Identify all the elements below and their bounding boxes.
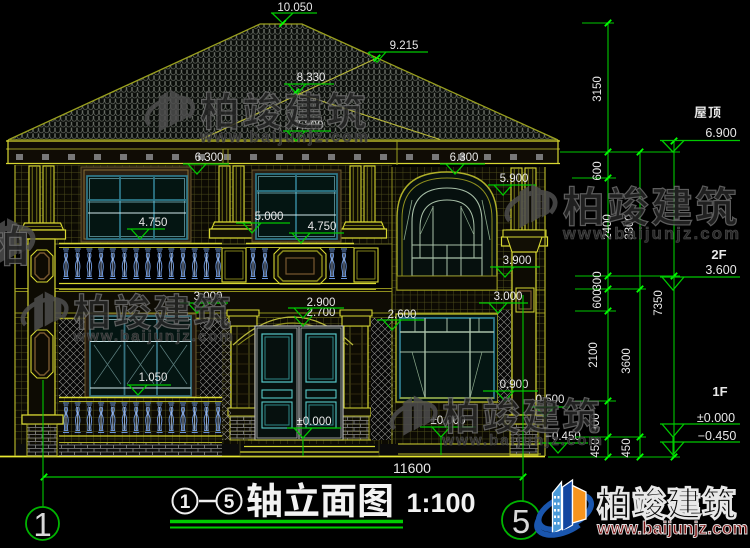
svg-text:3150: 3150: [592, 76, 604, 102]
svg-text:1F: 1F: [712, 384, 727, 399]
svg-text:2100: 2100: [588, 342, 600, 368]
svg-text:±0.000: ±0.000: [296, 416, 331, 428]
svg-text:5.900: 5.900: [500, 173, 529, 185]
svg-text:8.330: 8.330: [297, 72, 326, 84]
svg-text:www.baijunjz.com: www.baijunjz.com: [199, 129, 370, 146]
svg-text:1:100: 1:100: [406, 488, 475, 518]
svg-text:2F: 2F: [711, 247, 726, 262]
svg-text:6.900: 6.900: [705, 126, 736, 140]
svg-text:4.750: 4.750: [308, 221, 337, 233]
svg-text:600: 600: [592, 161, 604, 180]
svg-text:1: 1: [33, 506, 51, 543]
svg-text:11600: 11600: [393, 460, 431, 476]
svg-text:7350: 7350: [653, 290, 665, 316]
svg-text:5: 5: [224, 492, 235, 513]
svg-text:−0.450: −0.450: [698, 429, 737, 443]
svg-text:9.215: 9.215: [390, 40, 419, 52]
svg-text:3.900: 3.900: [503, 255, 532, 267]
svg-text:3600: 3600: [621, 348, 633, 374]
svg-text:600: 600: [592, 289, 604, 308]
svg-text:1.050: 1.050: [139, 372, 168, 384]
svg-text:5.000: 5.000: [255, 211, 284, 223]
svg-text:5: 5: [512, 503, 530, 540]
svg-text:www.baijunjz.com: www.baijunjz.com: [441, 432, 603, 449]
svg-text:6.300: 6.300: [195, 152, 224, 164]
svg-text:6.300: 6.300: [450, 152, 479, 164]
svg-text:www.baijunjz.com: www.baijunjz.com: [72, 328, 234, 345]
svg-text:0.900: 0.900: [500, 379, 529, 391]
svg-text:1: 1: [180, 492, 191, 513]
svg-text:2.600: 2.600: [388, 309, 417, 321]
svg-text:3.600: 3.600: [705, 263, 736, 277]
svg-text:3.000: 3.000: [494, 291, 523, 303]
svg-text:±0.000: ±0.000: [697, 411, 735, 425]
svg-text:www.baijunjz.com: www.baijunjz.com: [596, 518, 748, 538]
svg-text:300: 300: [592, 271, 604, 290]
svg-text:450: 450: [621, 438, 633, 457]
svg-text:10.050: 10.050: [277, 2, 312, 14]
svg-text:www.baijunjz.com: www.baijunjz.com: [562, 224, 741, 243]
svg-text:4.750: 4.750: [139, 217, 168, 229]
